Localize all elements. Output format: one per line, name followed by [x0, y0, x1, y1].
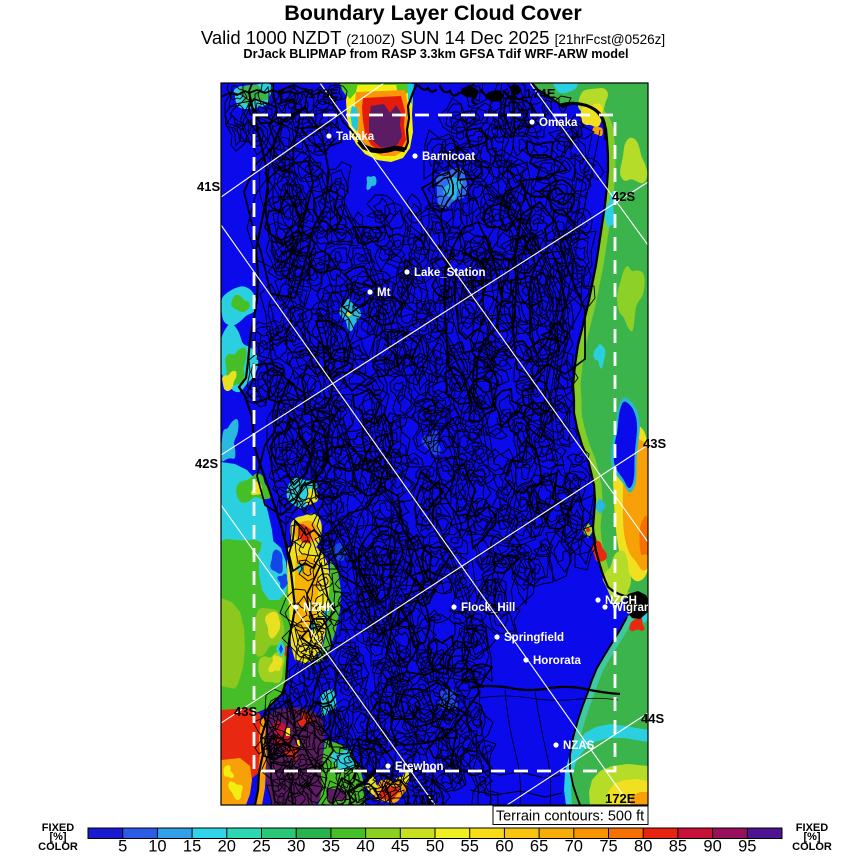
svg-text:COLOR: COLOR [792, 841, 832, 853]
svg-text:DrJack BLIPMAP from RASP 3.3km: DrJack BLIPMAP from RASP 3.3km GFSA Tdif… [243, 47, 628, 61]
svg-text:80: 80 [634, 838, 652, 856]
svg-text:25: 25 [252, 838, 270, 856]
svg-text:65: 65 [530, 838, 548, 856]
svg-text:45: 45 [391, 838, 409, 856]
svg-text:Flock_Hill: Flock_Hill [461, 602, 515, 614]
svg-text:10: 10 [148, 838, 166, 856]
svg-text:Mt: Mt [377, 287, 391, 299]
svg-text:20: 20 [218, 838, 236, 856]
svg-text:172E: 172E [605, 791, 636, 806]
svg-text:Terrain contours: 500 ft: Terrain contours: 500 ft [496, 809, 644, 825]
svg-text:5: 5 [118, 838, 127, 856]
svg-text:Barnicoat: Barnicoat [422, 151, 475, 163]
svg-text:171E: 171E [404, 792, 435, 807]
svg-text:42S: 42S [195, 456, 218, 471]
svg-text:30: 30 [287, 838, 305, 856]
svg-text:Omaka: Omaka [539, 117, 578, 129]
svg-text:85: 85 [669, 838, 687, 856]
svg-text:35: 35 [322, 838, 340, 856]
svg-text:COLOR: COLOR [38, 841, 78, 853]
svg-text:Erewhon: Erewhon [395, 761, 444, 773]
svg-text:43S: 43S [643, 436, 666, 451]
svg-text:Springfield: Springfield [504, 632, 564, 644]
svg-text:42S: 42S [612, 189, 635, 204]
svg-text:50: 50 [426, 838, 444, 856]
svg-text:NZAS: NZAS [563, 740, 595, 752]
svg-text:70: 70 [565, 838, 583, 856]
svg-text:Lake_Station: Lake_Station [414, 267, 486, 279]
svg-text:173E: 173E [308, 86, 339, 101]
svg-text:NZHK: NZHK [303, 602, 336, 614]
svg-text:15: 15 [183, 838, 201, 856]
svg-text:Takaka: Takaka [336, 131, 375, 143]
svg-text:Boundary Layer Cloud Cover: Boundary Layer Cloud Cover [284, 1, 582, 25]
svg-text:60: 60 [495, 838, 513, 856]
svg-text:90: 90 [703, 838, 721, 856]
svg-text:43S: 43S [234, 704, 257, 719]
svg-text:Hororata: Hororata [533, 655, 582, 667]
svg-text:40: 40 [356, 838, 374, 856]
svg-text:55: 55 [461, 838, 479, 856]
svg-text:44S: 44S [641, 711, 664, 726]
svg-text:95: 95 [738, 838, 756, 856]
svg-text:174E: 174E [525, 86, 556, 101]
svg-text:Wigram: Wigram [612, 602, 654, 614]
svg-text:75: 75 [599, 838, 617, 856]
svg-text:41S: 41S [197, 179, 220, 194]
